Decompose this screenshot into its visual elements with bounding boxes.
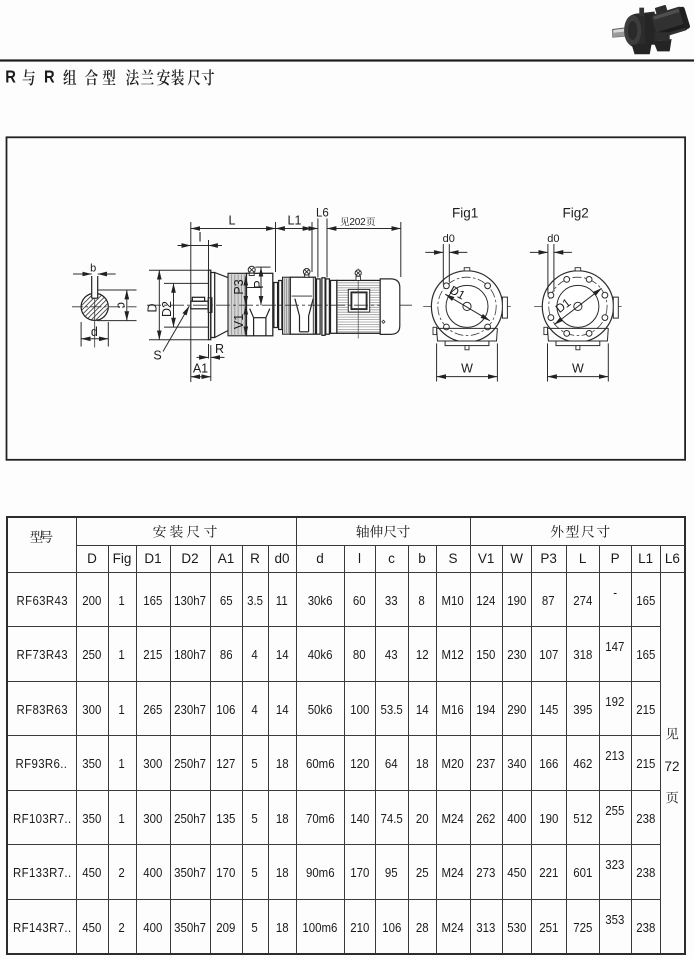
svg-text:V1: V1 bbox=[232, 314, 246, 329]
svg-text:L: L bbox=[229, 214, 236, 228]
svg-text:Fig2: Fig2 bbox=[563, 206, 589, 221]
svg-text:W: W bbox=[572, 361, 584, 375]
svg-text:Fig1: Fig1 bbox=[452, 206, 478, 221]
svg-text:W: W bbox=[461, 361, 473, 375]
svg-text:d: d bbox=[91, 325, 98, 339]
svg-text:c: c bbox=[114, 302, 128, 308]
svg-text:R: R bbox=[44, 67, 55, 87]
svg-text:A1: A1 bbox=[193, 362, 208, 376]
svg-text:D2: D2 bbox=[160, 301, 174, 317]
svg-text:P3: P3 bbox=[232, 279, 246, 294]
svg-text:L6: L6 bbox=[316, 208, 329, 220]
svg-text:b: b bbox=[90, 263, 96, 275]
svg-text:72: 72 bbox=[664, 759, 679, 774]
svg-text:R: R bbox=[215, 342, 224, 356]
svg-text:d0: d0 bbox=[547, 233, 559, 245]
svg-text:D: D bbox=[146, 303, 160, 312]
svg-text:S: S bbox=[153, 349, 161, 363]
svg-text:202: 202 bbox=[349, 217, 366, 228]
svg-text:l: l bbox=[199, 231, 202, 245]
svg-text:R: R bbox=[5, 67, 16, 87]
svg-text:d0: d0 bbox=[443, 233, 455, 245]
svg-text:L1: L1 bbox=[288, 214, 302, 228]
svg-text:P: P bbox=[252, 280, 266, 288]
